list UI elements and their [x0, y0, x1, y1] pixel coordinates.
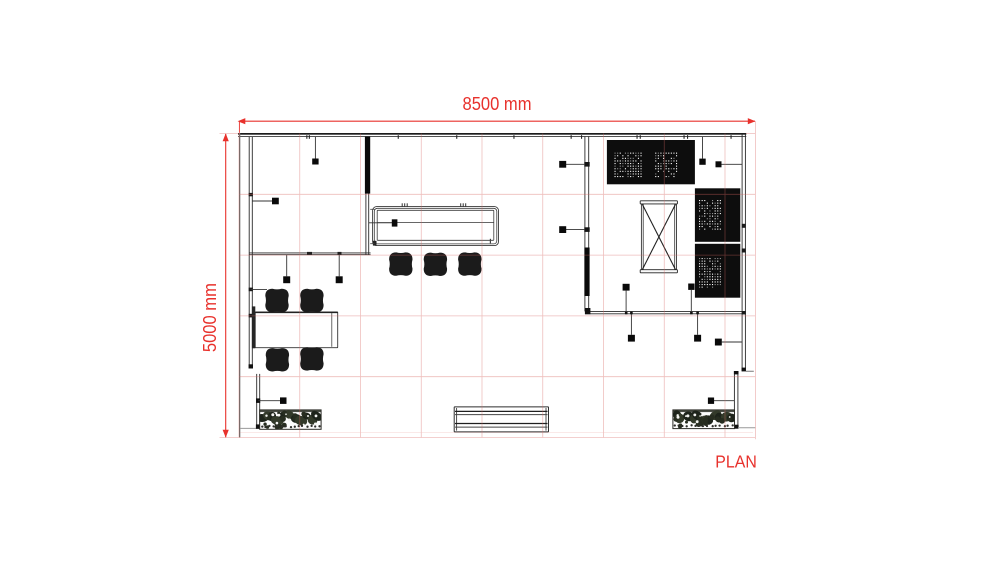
svg-text:8500 mm: 8500 mm: [463, 94, 532, 114]
svg-text:5000 mm: 5000 mm: [200, 283, 220, 352]
svg-text:PLAN: PLAN: [715, 451, 757, 471]
